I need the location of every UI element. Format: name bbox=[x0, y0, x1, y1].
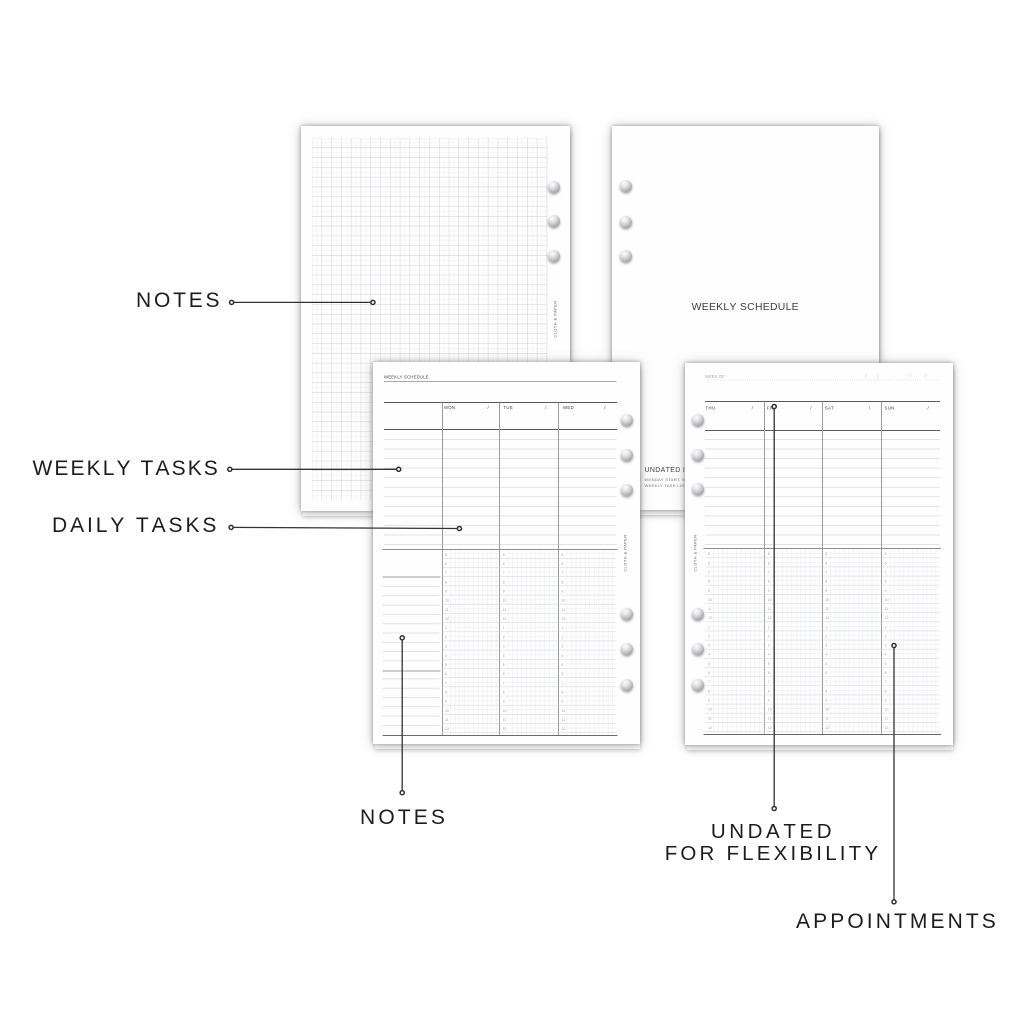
svg-text:TUE: TUE bbox=[503, 405, 513, 410]
svg-text:56789101112123456789101112: 56789101112123456789101112 bbox=[561, 553, 565, 731]
svg-text:56789101112123456789101112: 56789101112123456789101112 bbox=[708, 552, 712, 730]
svg-text:SAT: SAT bbox=[825, 405, 834, 410]
svg-text:CLOTH & PAPER: CLOTH & PAPER bbox=[623, 534, 627, 571]
svg-text:/: / bbox=[545, 405, 547, 410]
svg-text:MON: MON bbox=[444, 405, 455, 410]
svg-text:/: / bbox=[925, 374, 927, 379]
svg-text:/: / bbox=[865, 374, 867, 379]
svg-text:WED: WED bbox=[563, 405, 574, 410]
svg-text:56789101112123456789101112: 56789101112123456789101112 bbox=[885, 552, 889, 730]
svg-text:56789101112123456789101112: 56789101112123456789101112 bbox=[768, 552, 772, 730]
svg-text:CLOTH & PAPER: CLOTH & PAPER bbox=[694, 534, 698, 571]
svg-text:WEEK OF:: WEEK OF: bbox=[705, 374, 726, 379]
svg-text:/: / bbox=[810, 405, 812, 410]
svg-text:/: / bbox=[877, 374, 879, 379]
svg-text:.: . bbox=[895, 374, 896, 379]
svg-text:/: / bbox=[910, 374, 912, 379]
svg-text:SUN: SUN bbox=[885, 405, 895, 410]
svg-text:/: / bbox=[752, 405, 754, 410]
svg-text:WEEKLY SCHEDULE: WEEKLY SCHEDULE bbox=[384, 375, 429, 380]
svg-text:CLOTH & PAPER: CLOTH & PAPER bbox=[553, 301, 557, 338]
svg-text:/: / bbox=[928, 405, 930, 410]
svg-text:/: / bbox=[869, 405, 871, 410]
svg-text:56789101112123456789101112: 56789101112123456789101112 bbox=[503, 553, 507, 731]
svg-text:FRI: FRI bbox=[767, 405, 775, 410]
svg-text:/: / bbox=[604, 405, 606, 410]
svg-text:THU: THU bbox=[706, 405, 716, 410]
svg-text:/: / bbox=[488, 405, 490, 410]
svg-text:56789101112123456789101112: 56789101112123456789101112 bbox=[825, 552, 829, 730]
svg-text:56789101112123456789101112: 56789101112123456789101112 bbox=[445, 553, 449, 731]
